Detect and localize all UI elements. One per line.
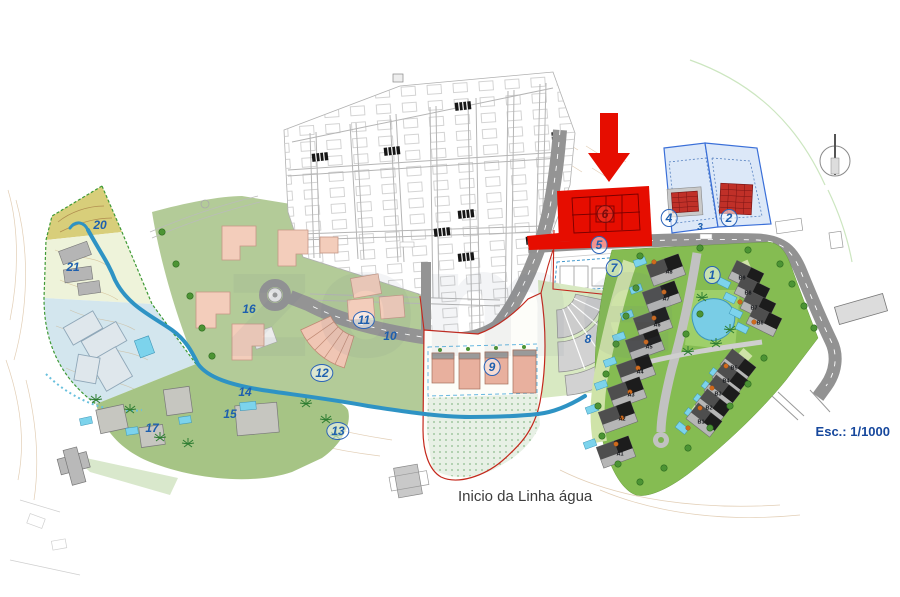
site-plan: zome 12345678910111213141516172021A8A7A6… — [0, 0, 900, 597]
scale-label: Esc.: 1/1000 — [806, 424, 890, 439]
lagoon-pool — [692, 299, 735, 341]
waterline-annotation: Inicio da Linha água — [458, 488, 592, 505]
lots-4-2-3 — [664, 143, 771, 233]
site-plan-drawing — [0, 0, 900, 597]
